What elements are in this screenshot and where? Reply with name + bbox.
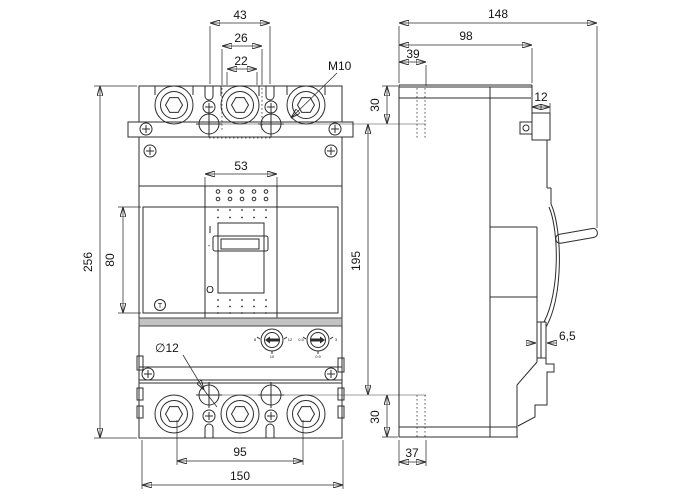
lower-steps bbox=[518, 358, 554, 426]
terminal-lug bbox=[287, 86, 325, 124]
vent-holes bbox=[216, 197, 268, 201]
vent-holes bbox=[217, 299, 267, 301]
screw-icon bbox=[325, 145, 337, 157]
dim-12: 12 bbox=[534, 90, 548, 104]
terminal-lug bbox=[155, 86, 193, 124]
dim-150: 150 bbox=[230, 469, 250, 483]
handle-escutcheon-box bbox=[532, 113, 550, 140]
mid-band bbox=[139, 318, 342, 326]
dim-43: 43 bbox=[233, 8, 247, 22]
off-marking: O bbox=[206, 285, 214, 296]
screw-icon bbox=[203, 410, 215, 422]
terminal-lug bbox=[221, 86, 259, 124]
screw-icon bbox=[142, 368, 154, 380]
handle-lever[interactable] bbox=[555, 228, 598, 244]
on-marking: I bbox=[209, 225, 212, 236]
terminal-lug bbox=[155, 395, 193, 433]
vent-holes bbox=[216, 190, 268, 194]
dial-left-max: 12 bbox=[288, 337, 293, 342]
screw-icon bbox=[329, 123, 341, 135]
dial-left[interactable]: 8 12 10 bbox=[254, 329, 293, 359]
dim-195: 195 bbox=[349, 251, 363, 271]
screw-icon bbox=[140, 123, 152, 135]
test-label: T bbox=[158, 303, 163, 310]
toggle-recess bbox=[218, 223, 264, 293]
dim-95: 95 bbox=[233, 445, 247, 459]
bottom-notch bbox=[266, 424, 274, 438]
dim-26: 26 bbox=[234, 31, 248, 45]
dash-marking: - bbox=[208, 243, 211, 250]
terminal-lug bbox=[221, 395, 259, 433]
dim-148: 148 bbox=[488, 7, 508, 21]
front-view: I - O T 8 12 10 0.5 3 0.9 bbox=[128, 86, 426, 438]
dial-left-min: 8 bbox=[254, 337, 257, 342]
dim-256: 256 bbox=[81, 252, 95, 272]
screw-icon bbox=[144, 145, 156, 157]
hole-callout: ∅12 bbox=[155, 341, 179, 355]
dim-22: 22 bbox=[234, 54, 248, 68]
front-dimensions: 43 26 22 M10 53 256 80 ∅12 95 150 bbox=[81, 8, 352, 489]
vent-holes bbox=[217, 209, 267, 211]
top-notch bbox=[266, 86, 274, 100]
thread-callout: M10 bbox=[328, 59, 352, 73]
vent-holes bbox=[217, 306, 267, 308]
dim-80: 80 bbox=[103, 253, 117, 267]
dim-39: 39 bbox=[406, 47, 420, 61]
dim-30-top: 30 bbox=[368, 98, 382, 112]
drawing-page: I - O T 8 12 10 0.5 3 0.9 bbox=[0, 0, 700, 500]
dim-53: 53 bbox=[234, 159, 248, 173]
dial-right[interactable]: 0.5 3 0.9 bbox=[298, 329, 338, 359]
screw-icon bbox=[265, 410, 277, 422]
dial-right-max: 3 bbox=[335, 337, 338, 342]
side-dimensions: 148 98 39 30 12 195 6,5 30 37 bbox=[349, 7, 597, 466]
dim-98: 98 bbox=[459, 29, 473, 43]
dial-left-mid: 10 bbox=[270, 354, 275, 359]
dim-37: 37 bbox=[405, 446, 419, 460]
side-view bbox=[399, 85, 598, 437]
dial-right-min: 0.5 bbox=[298, 337, 304, 342]
screw-icon bbox=[325, 368, 337, 380]
bottom-notch bbox=[205, 424, 213, 438]
top-notch bbox=[205, 86, 213, 100]
vent-holes bbox=[217, 217, 267, 219]
dim-6-5: 6,5 bbox=[559, 329, 576, 343]
toggle-dome bbox=[546, 204, 559, 327]
dial-right-mid: 0.9 bbox=[315, 354, 321, 359]
technical-drawing: I - O T 8 12 10 0.5 3 0.9 bbox=[0, 0, 700, 500]
dim-30-bottom: 30 bbox=[368, 410, 382, 424]
terminal-lug bbox=[287, 395, 325, 433]
breaker-body-outline bbox=[128, 86, 353, 438]
